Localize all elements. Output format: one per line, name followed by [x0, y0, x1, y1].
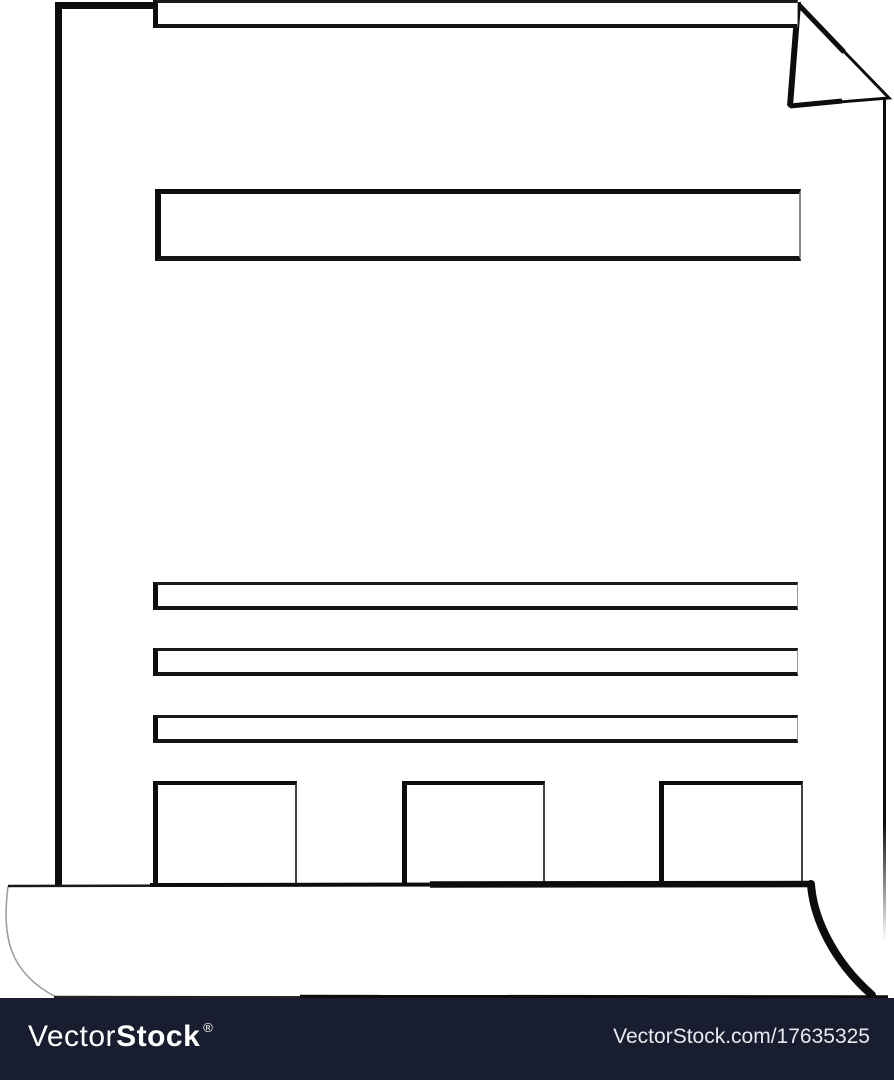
curled-bottom-edge-icon — [0, 868, 894, 1010]
image-url-text: VectorStock.com/17635325 — [613, 1025, 870, 1049]
vectorstock-logo: VectorStock® — [28, 1020, 213, 1054]
text-line-placeholder-2 — [153, 648, 798, 676]
stock-image-canvas: VectorStock® VectorStock.com/17635325 — [0, 0, 894, 1080]
curl-left-hairline — [6, 886, 56, 997]
text-line-placeholder-1 — [153, 582, 798, 610]
vectorstock-watermark-bar: VectorStock® VectorStock.com/17635325 — [0, 998, 894, 1080]
document-left-edge — [55, 2, 62, 886]
logo-text-light: Vector — [28, 1020, 116, 1053]
text-line-placeholder-3 — [153, 715, 798, 743]
document-illustration — [0, 0, 894, 1080]
document-right-edge — [883, 96, 886, 941]
page-curl-curve — [811, 884, 872, 995]
text-line-placeholder-7 — [153, 0, 798, 28]
strip-top-line-thick — [430, 884, 812, 885]
logo-text-bold: Stock — [116, 1020, 200, 1053]
fold-triangle — [790, 4, 889, 106]
registered-trademark-symbol: ® — [203, 1020, 213, 1035]
title-placeholder-block — [155, 189, 801, 261]
